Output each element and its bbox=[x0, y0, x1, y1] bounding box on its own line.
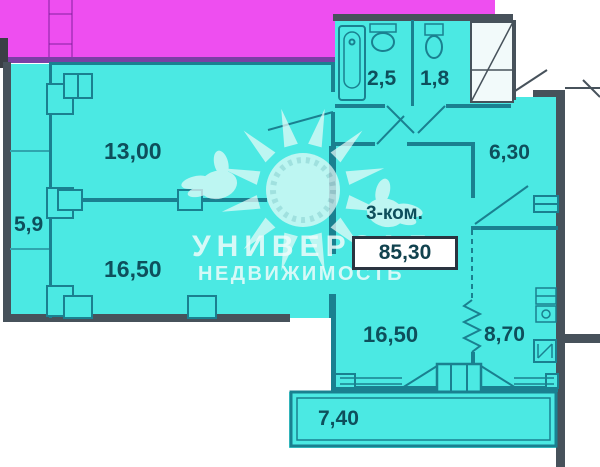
area-label-living-left: 16,50 bbox=[104, 258, 162, 281]
area-label-bedroom-right: 16,50 bbox=[363, 324, 418, 346]
apartment-type-label: 3-ком. bbox=[366, 204, 423, 223]
area-label-wc: 1,8 bbox=[420, 68, 449, 89]
area-label-bedroom-top: 13,00 bbox=[104, 140, 162, 163]
total-area-box: 85,30 bbox=[352, 236, 458, 270]
area-label-hallway: 6,30 bbox=[489, 142, 530, 163]
area-label-balcony: 7,40 bbox=[318, 408, 359, 429]
area-label-loggia-left: 5,9 bbox=[14, 214, 43, 235]
total-area-value: 85,30 bbox=[379, 241, 432, 265]
area-label-bathroom: 2,5 bbox=[367, 68, 396, 89]
floorplan: УНИВЕРСАЛ НЕДВИЖИМОСТЬ 13,00 5,9 16,50 2… bbox=[0, 0, 600, 467]
area-label-kitchen: 8,70 bbox=[484, 324, 525, 345]
shaft bbox=[471, 22, 513, 102]
